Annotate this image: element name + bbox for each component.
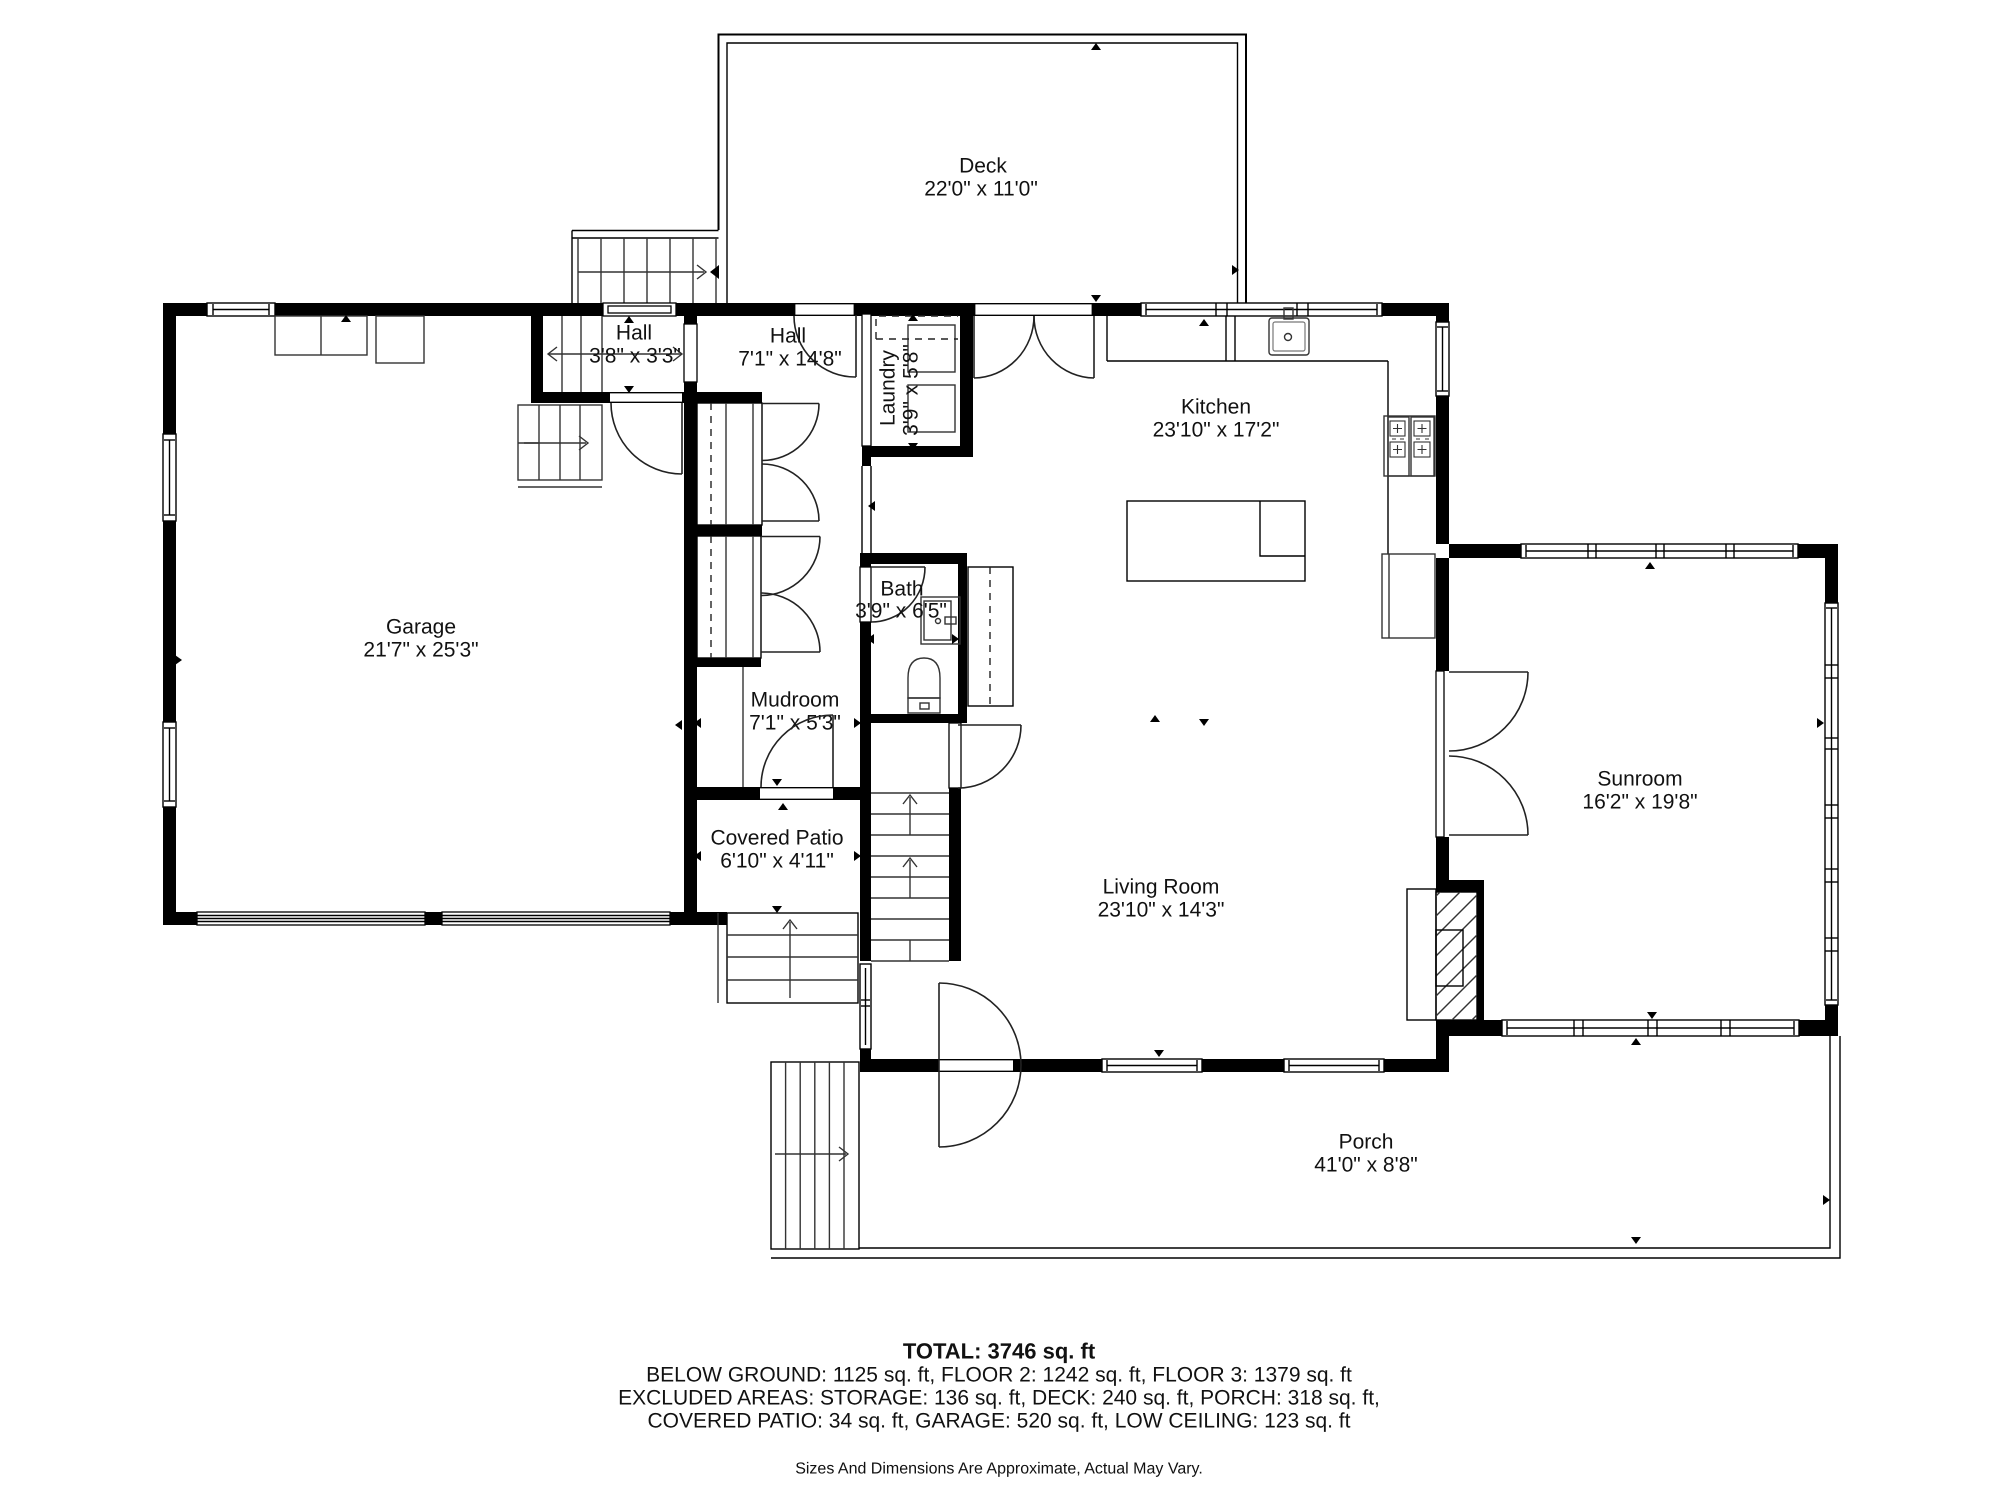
svg-text:Living Room: Living Room	[1103, 876, 1220, 899]
svg-text:Covered Patio: Covered Patio	[710, 827, 843, 850]
svg-text:23'10" x 17'2": 23'10" x 17'2"	[1153, 419, 1280, 442]
svg-text:Hall: Hall	[616, 322, 652, 345]
svg-text:3'9" x 6'5": 3'9" x 6'5"	[855, 600, 947, 623]
svg-text:Kitchen: Kitchen	[1181, 396, 1251, 419]
svg-text:Sunroom: Sunroom	[1597, 768, 1682, 791]
svg-text:21'7" x 25'3": 21'7" x 25'3"	[363, 639, 478, 662]
svg-text:3'9" x 5'8": 3'9" x 5'8"	[900, 344, 923, 436]
svg-text:3'8" x 3'3": 3'8" x 3'3"	[589, 345, 681, 368]
svg-text:7'1" x 14'8": 7'1" x 14'8"	[738, 348, 842, 371]
svg-text:Mudroom: Mudroom	[751, 689, 840, 712]
svg-text:BELOW GROUND: 1125 sq. ft, FLO: BELOW GROUND: 1125 sq. ft, FLOOR 2: 1242…	[646, 1364, 1352, 1387]
svg-text:22'0" x 11'0": 22'0" x 11'0"	[924, 178, 1038, 201]
svg-text:Sizes And Dimensions Are Appro: Sizes And Dimensions Are Approximate, Ac…	[795, 1461, 1203, 1478]
svg-text:Laundry: Laundry	[877, 350, 900, 426]
svg-text:23'10" x 14'3": 23'10" x 14'3"	[1098, 899, 1225, 922]
svg-text:Garage: Garage	[386, 616, 456, 639]
svg-text:EXCLUDED AREAS: STORAGE: 136 s: EXCLUDED AREAS: STORAGE: 136 sq. ft, DEC…	[618, 1387, 1380, 1410]
svg-text:TOTAL: 3746 sq. ft: TOTAL: 3746 sq. ft	[903, 1339, 1096, 1364]
svg-text:Porch: Porch	[1339, 1131, 1394, 1154]
svg-text:41'0" x 8'8": 41'0" x 8'8"	[1314, 1154, 1418, 1177]
svg-text:Hall: Hall	[770, 325, 806, 348]
svg-text:16'2" x 19'8": 16'2" x 19'8"	[1582, 791, 1697, 814]
svg-text:Deck: Deck	[959, 155, 1007, 178]
svg-text:Bath: Bath	[880, 578, 923, 601]
svg-text:6'10" x 4'11": 6'10" x 4'11"	[720, 850, 834, 873]
svg-text:COVERED PATIO: 34 sq. ft, GARA: COVERED PATIO: 34 sq. ft, GARAGE: 520 sq…	[648, 1410, 1351, 1433]
